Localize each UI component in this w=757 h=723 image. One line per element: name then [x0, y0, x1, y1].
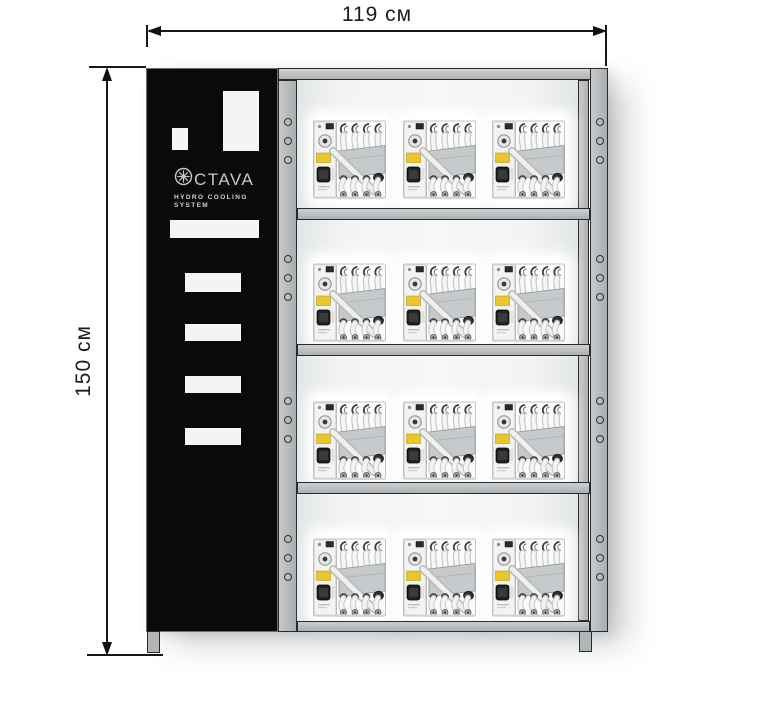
ethernet-port	[416, 405, 424, 411]
ethernet-port	[326, 542, 334, 548]
cooling-unit	[491, 397, 567, 483]
post-rivet-hole	[284, 274, 292, 282]
warning-label	[317, 434, 331, 444]
warning-label	[407, 571, 421, 581]
ethernet-port	[326, 124, 334, 130]
post-rivet-hole	[596, 397, 604, 405]
brand-logo: CTAVA HYDRO COOLING SYSTEM	[174, 167, 274, 209]
post-rivet-hole	[596, 416, 604, 424]
cabinet-foot-right	[579, 631, 592, 652]
indicator-dot	[497, 268, 500, 271]
post-rivet-hole	[596, 255, 604, 263]
rack-shelf-2	[297, 344, 590, 356]
warning-label	[496, 153, 510, 163]
warning-label	[496, 571, 510, 581]
warning-label	[407, 434, 421, 444]
ethernet-port	[326, 405, 334, 411]
cooling-unit	[402, 534, 478, 620]
ethernet-port	[505, 267, 513, 273]
warning-label	[317, 153, 331, 163]
indicator-dot	[318, 268, 321, 271]
post-rivet-hole	[284, 416, 292, 424]
panel-cutout-small	[172, 128, 188, 150]
warning-label	[496, 296, 510, 306]
warning-label	[407, 296, 421, 306]
indicator-dot	[408, 406, 411, 409]
rack-bottom-rail	[297, 621, 590, 632]
post-rivet-hole	[284, 535, 292, 543]
brand-name: CTAVA	[194, 170, 254, 189]
indicator-dot	[497, 406, 500, 409]
indicator-dot	[318, 543, 321, 546]
branding-panel: CTAVA HYDRO COOLING SYSTEM	[146, 68, 278, 632]
indicator-dot	[318, 406, 321, 409]
cooling-unit	[402, 259, 478, 345]
brand-subtitle-line2: SYSTEM	[174, 202, 274, 209]
panel-vent-slot	[185, 324, 241, 341]
ethernet-port	[505, 124, 513, 130]
post-rivet-hole	[596, 137, 604, 145]
ethernet-port	[505, 405, 513, 411]
post-rivet-hole	[284, 573, 292, 581]
cooling-unit	[491, 534, 567, 620]
post-rivet-hole	[596, 435, 604, 443]
height-dimension-label: 150 см	[72, 325, 96, 397]
panel-vent-slot	[185, 428, 241, 445]
indicator-dot	[408, 125, 411, 128]
post-rivet-hole	[284, 156, 292, 164]
width-dimension-label: 119 см	[147, 3, 607, 27]
ethernet-port	[416, 542, 424, 548]
post-rivet-hole	[596, 118, 604, 126]
height-extension-tick-top	[89, 66, 146, 68]
brand-subtitle-line1: HYDRO COOLING	[174, 194, 274, 201]
cooling-unit	[491, 259, 567, 345]
width-dimension-line	[149, 30, 605, 32]
indicator-dot	[497, 125, 500, 128]
warning-label	[317, 571, 331, 581]
post-rivet-hole	[284, 118, 292, 126]
product-dimension-diagram: 119 см 150 см	[0, 0, 757, 723]
post-rivet-hole	[284, 435, 292, 443]
arrowhead-left-icon	[147, 26, 161, 36]
cooling-unit	[312, 534, 388, 620]
post-rivet-hole	[596, 274, 604, 282]
height-extension-tick-bottom	[87, 654, 163, 656]
width-extension-tick-right	[605, 25, 607, 66]
post-rivet-hole	[284, 137, 292, 145]
panel-vent-slot	[185, 376, 241, 393]
post-rivet-hole	[284, 554, 292, 562]
warning-label	[407, 153, 421, 163]
warning-label	[317, 296, 331, 306]
post-rivet-hole	[284, 397, 292, 405]
ethernet-port	[416, 267, 424, 273]
panel-vent-slot	[185, 273, 241, 292]
ethernet-port	[416, 124, 424, 130]
octava-logo-icon	[174, 167, 193, 191]
indicator-dot	[408, 543, 411, 546]
indicator-dot	[497, 543, 500, 546]
post-rivet-hole	[596, 535, 604, 543]
ethernet-port	[326, 267, 334, 273]
post-rivet-hole	[596, 573, 604, 581]
panel-vent-slot-wide	[170, 220, 259, 238]
cooling-unit	[312, 259, 388, 345]
rack-shelf-3	[297, 482, 590, 494]
post-rivet-hole	[284, 293, 292, 301]
post-rivet-hole	[284, 255, 292, 263]
width-extension-tick-left	[146, 25, 148, 47]
indicator-dot	[408, 268, 411, 271]
post-rivet-hole	[596, 554, 604, 562]
warning-label	[496, 434, 510, 444]
cabinet: CTAVA HYDRO COOLING SYSTEM	[146, 68, 608, 632]
cabinet-foot-left	[147, 631, 160, 653]
post-rivet-hole	[596, 156, 604, 164]
cooling-unit	[312, 397, 388, 483]
rack-shelf-1	[297, 208, 590, 220]
cooling-unit	[491, 116, 567, 202]
panel-cutout-large	[223, 91, 259, 151]
height-dimension-line	[106, 70, 108, 653]
post-rivet-hole	[596, 293, 604, 301]
cooling-unit	[402, 116, 478, 202]
indicator-dot	[318, 125, 321, 128]
cooling-unit	[402, 397, 478, 483]
ethernet-port	[505, 542, 513, 548]
arrowhead-up-icon	[102, 67, 112, 81]
cooling-unit	[312, 116, 388, 202]
